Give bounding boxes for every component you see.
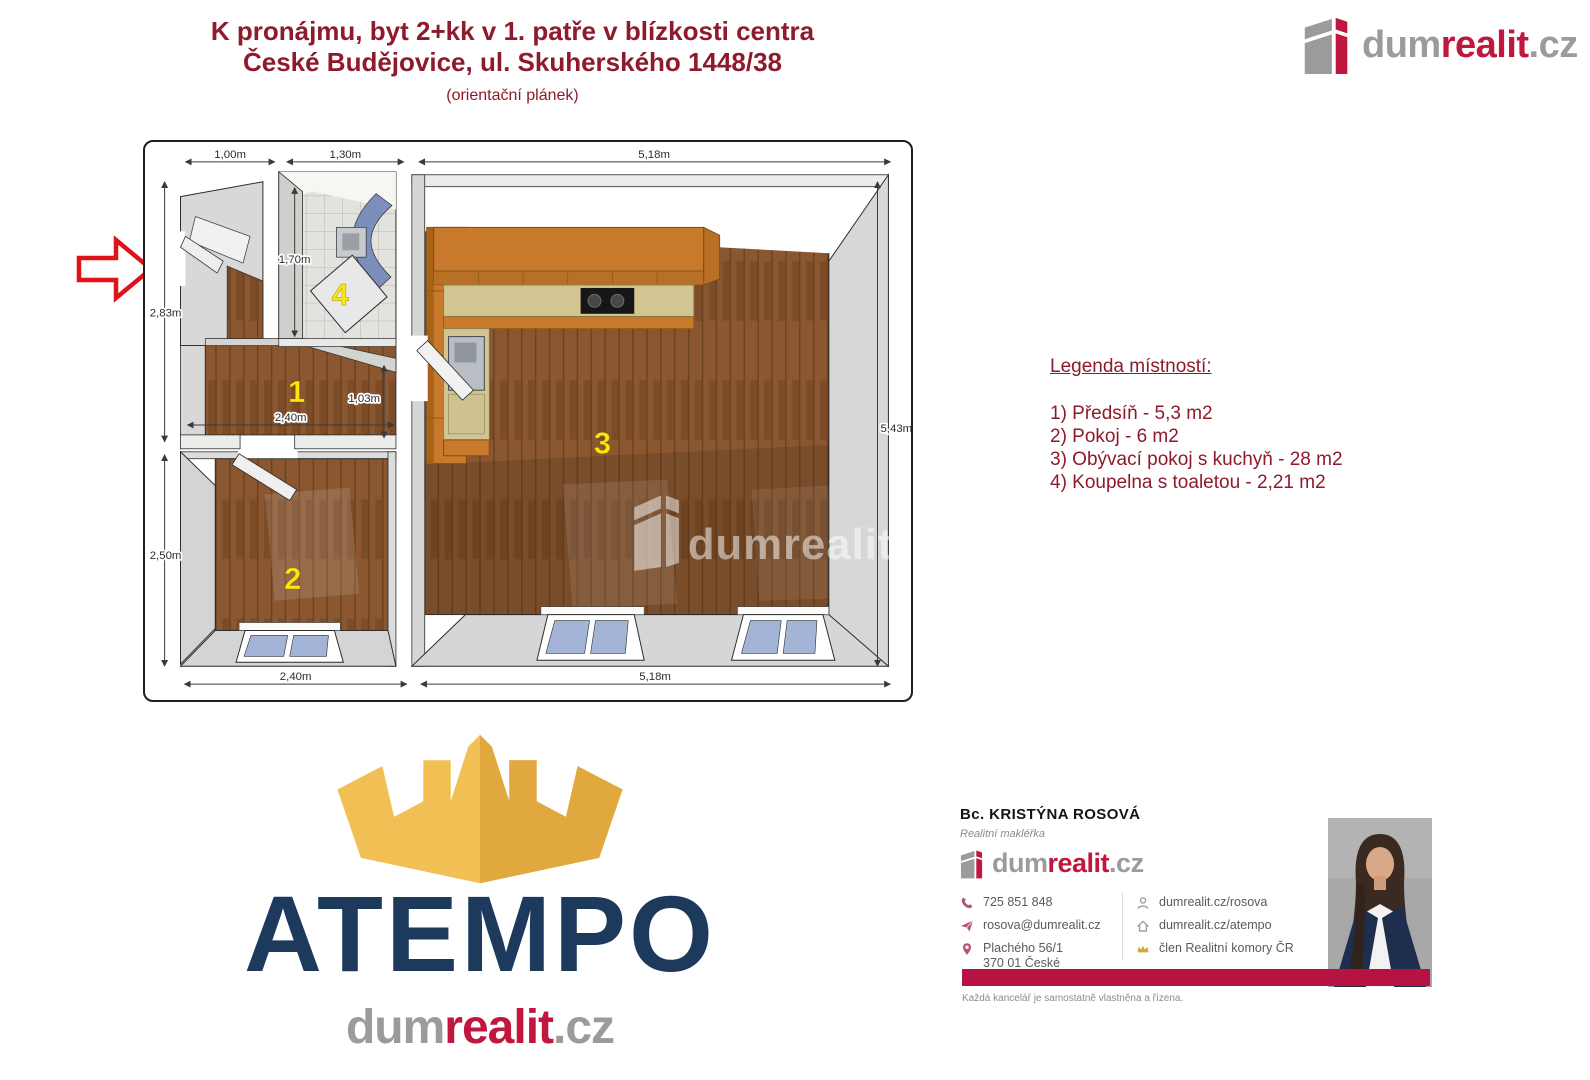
dim-left-upper: 2,83m [150, 308, 182, 320]
legend-title: Legenda místností: [1050, 356, 1343, 378]
agent-photo [1328, 818, 1432, 987]
room-number-hall: 1 [288, 374, 305, 409]
room-2-bedroom [180, 450, 395, 666]
dumrealit-box-icon [960, 849, 984, 879]
dim-hall-width: 2,40m [275, 412, 307, 424]
page-title: K pronájmu, byt 2+kk v 1. patře v blízko… [140, 16, 885, 105]
room-number-bedroom: 2 [284, 561, 301, 596]
footer-accent-bar [962, 969, 1430, 986]
living-right-wall [829, 175, 889, 666]
contact-web-profile: dumrealit.cz/rosova [1136, 895, 1336, 910]
dim-bath-depth: 1,70m [279, 254, 311, 266]
title-subtitle: (orientační plánek) [140, 87, 885, 105]
title-line-1: K pronájmu, byt 2+kk v 1. patře v blízko… [140, 16, 885, 47]
contact-phone: 725 851 848 [960, 895, 1110, 910]
card-dumrealit-wordmark: dumrealit.cz [992, 848, 1144, 879]
legend-item-2: 2) Pokoj - 6 m2 [1050, 425, 1343, 448]
wall-hall-bedroom-right [295, 435, 396, 449]
phone-icon [960, 896, 974, 910]
dim-left-lower: 2,50m [150, 550, 182, 562]
room-number-bathroom: 4 [332, 277, 349, 312]
contact-web-office: dumrealit.cz/atempo [1136, 918, 1336, 933]
atempo-dumrealit-wordmark: dumrealit.cz [130, 1000, 830, 1055]
legend-item-4: 4) Koupelna s toaletou - 2,21 m2 [1050, 471, 1343, 494]
map-pin-icon [960, 942, 974, 956]
watermark-text: dumrealit [688, 520, 894, 569]
dim-bottom-living: 5,18m [639, 671, 671, 683]
home-icon [1136, 919, 1150, 933]
agent-name: Bc. KRISTÝNA ROSOVÁ [960, 806, 1140, 823]
floor-plan: dumrealit 1 2 3 4 1,00m 1,30m 5,18m 2,40… [143, 140, 913, 702]
contact-email: rosova@dumrealit.cz [960, 918, 1110, 933]
dim-bottom-bedroom: 2,40m [280, 671, 312, 683]
address-line-1: Plachého 56/1 [983, 941, 1063, 955]
footer-disclaimer: Každá kancelář je samostatně vlastněna a… [962, 993, 1183, 1004]
dim-top-living: 5,18m [638, 149, 670, 161]
dumrealit-wordmark: dumrealit.cz [1362, 24, 1578, 67]
dim-hall-depth: 1,03m [348, 393, 380, 405]
contact-column-right: dumrealit.cz/rosova dumrealit.cz/atempo … [1136, 895, 1336, 964]
entry-nook [176, 182, 263, 346]
atempo-crown-icon [314, 727, 646, 895]
flyer-page: K pronájmu, byt 2+kk v 1. patře v blízko… [0, 0, 1590, 1080]
dumrealit-box-icon [1302, 16, 1352, 74]
legend: Legenda místností: 1) Předsíň - 5,3 m2 2… [1050, 356, 1343, 494]
floor-plan-drawing: dumrealit 1 2 3 4 1,00m 1,30m 5,18m 2,40… [145, 142, 911, 700]
room-number-living: 3 [594, 426, 611, 461]
legend-item-1: 1) Předsíň - 5,3 m2 [1050, 402, 1343, 425]
room-3-living: dumrealit [409, 175, 894, 666]
dim-top-bath: 1,30m [329, 149, 361, 161]
face [1366, 847, 1394, 881]
legend-item-3: 3) Obývací pokoj s kuchyň - 28 m2 [1050, 448, 1343, 471]
contact-divider [1122, 892, 1123, 960]
contact-membership: člen Realitní komory ČR [1136, 941, 1336, 956]
wall-hall-bedroom-left [180, 435, 240, 449]
person-icon [1136, 896, 1150, 910]
title-line-2: České Budějovice, ul. Skuherského 1448/3… [140, 47, 885, 78]
atempo-wordmark: ATEMPO [130, 880, 830, 988]
crown-icon [1136, 942, 1150, 956]
agent-role: Realitní makléřka [960, 828, 1045, 840]
send-icon [960, 919, 974, 933]
dumrealit-logo: dumrealit.cz [1302, 16, 1578, 74]
dim-right-side: 5,43m [880, 423, 911, 435]
card-dumrealit-logo: dumrealit.cz [960, 848, 1144, 879]
dim-top-entry: 1,00m [214, 149, 246, 161]
